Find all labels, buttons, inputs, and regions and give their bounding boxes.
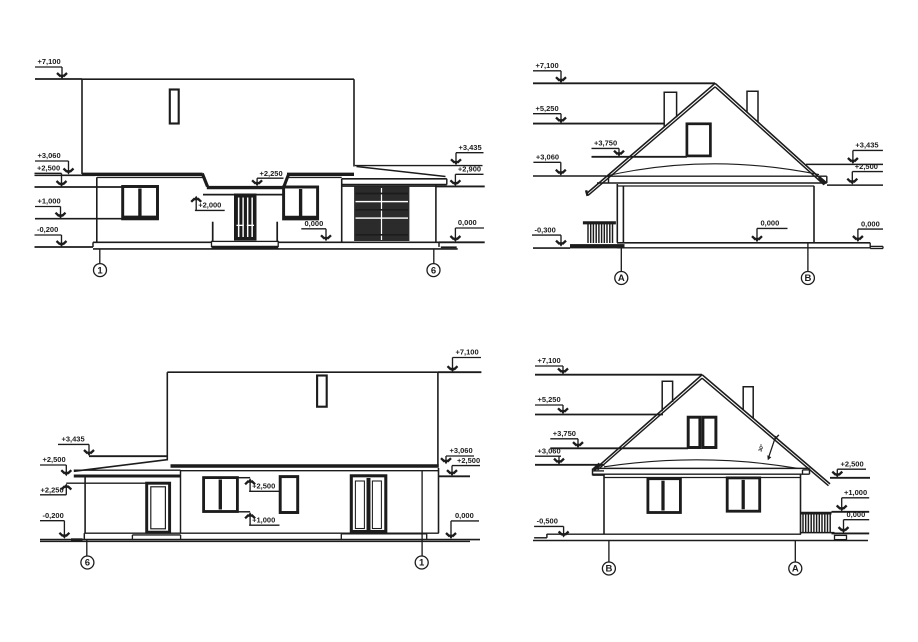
svg-text:A: A: [792, 564, 799, 575]
svg-text:+3,435: +3,435: [62, 435, 85, 444]
svg-text:+7,100: +7,100: [538, 356, 561, 365]
svg-text:+2,250: +2,250: [41, 485, 64, 494]
svg-text:+3,435: +3,435: [459, 143, 482, 152]
svg-text:+3,060: +3,060: [38, 151, 61, 160]
svg-text:0,000: 0,000: [761, 219, 780, 228]
svg-text:+2,500: +2,500: [457, 456, 480, 465]
svg-text:+2,900: +2,900: [458, 165, 481, 174]
svg-text:0,000: 0,000: [455, 511, 474, 520]
svg-text:B: B: [804, 273, 811, 284]
svg-text:-0,500: -0,500: [537, 517, 558, 526]
svg-text:+2,250: +2,250: [260, 169, 283, 178]
svg-text:+3,435: +3,435: [855, 141, 878, 150]
svg-text:+7,100: +7,100: [38, 57, 61, 66]
svg-text:+2,500: +2,500: [841, 459, 864, 468]
svg-text:+2,500: +2,500: [37, 164, 60, 173]
svg-text:6: 6: [85, 558, 90, 569]
svg-text:+5,250: +5,250: [538, 395, 561, 404]
svg-text:+3,060: +3,060: [450, 446, 473, 455]
svg-text:1: 1: [419, 558, 425, 569]
svg-text:0,000: 0,000: [861, 219, 880, 228]
svg-text:+7,100: +7,100: [536, 61, 559, 70]
svg-text:A: A: [618, 273, 625, 284]
svg-text:+3,060: +3,060: [536, 153, 559, 162]
svg-text:0,000: 0,000: [305, 219, 324, 228]
svg-text:1: 1: [97, 265, 103, 276]
svg-text:+2,500: +2,500: [855, 162, 878, 171]
svg-text:+3,750: +3,750: [553, 429, 576, 438]
svg-text:+3,060: +3,060: [538, 446, 561, 455]
svg-text:0,000: 0,000: [458, 218, 477, 227]
svg-text:+5,250: +5,250: [536, 104, 559, 113]
svg-text:+1,000: +1,000: [38, 197, 61, 206]
svg-text:+2,000: +2,000: [198, 201, 221, 210]
svg-text:-0,200: -0,200: [43, 511, 64, 520]
svg-text:+7,100: +7,100: [456, 348, 479, 357]
svg-text:-0,300: -0,300: [535, 225, 556, 234]
svg-text:+1,000: +1,000: [844, 488, 867, 497]
svg-text:+2,500: +2,500: [43, 455, 66, 464]
svg-text:0,000: 0,000: [847, 510, 866, 519]
svg-text:+1,000: +1,000: [252, 515, 275, 524]
svg-text:6: 6: [431, 265, 436, 276]
svg-text:+2,500: +2,500: [252, 482, 275, 491]
svg-text:B: B: [605, 564, 612, 575]
svg-text:-0,200: -0,200: [37, 225, 58, 234]
svg-text:+3,750: +3,750: [594, 139, 617, 148]
